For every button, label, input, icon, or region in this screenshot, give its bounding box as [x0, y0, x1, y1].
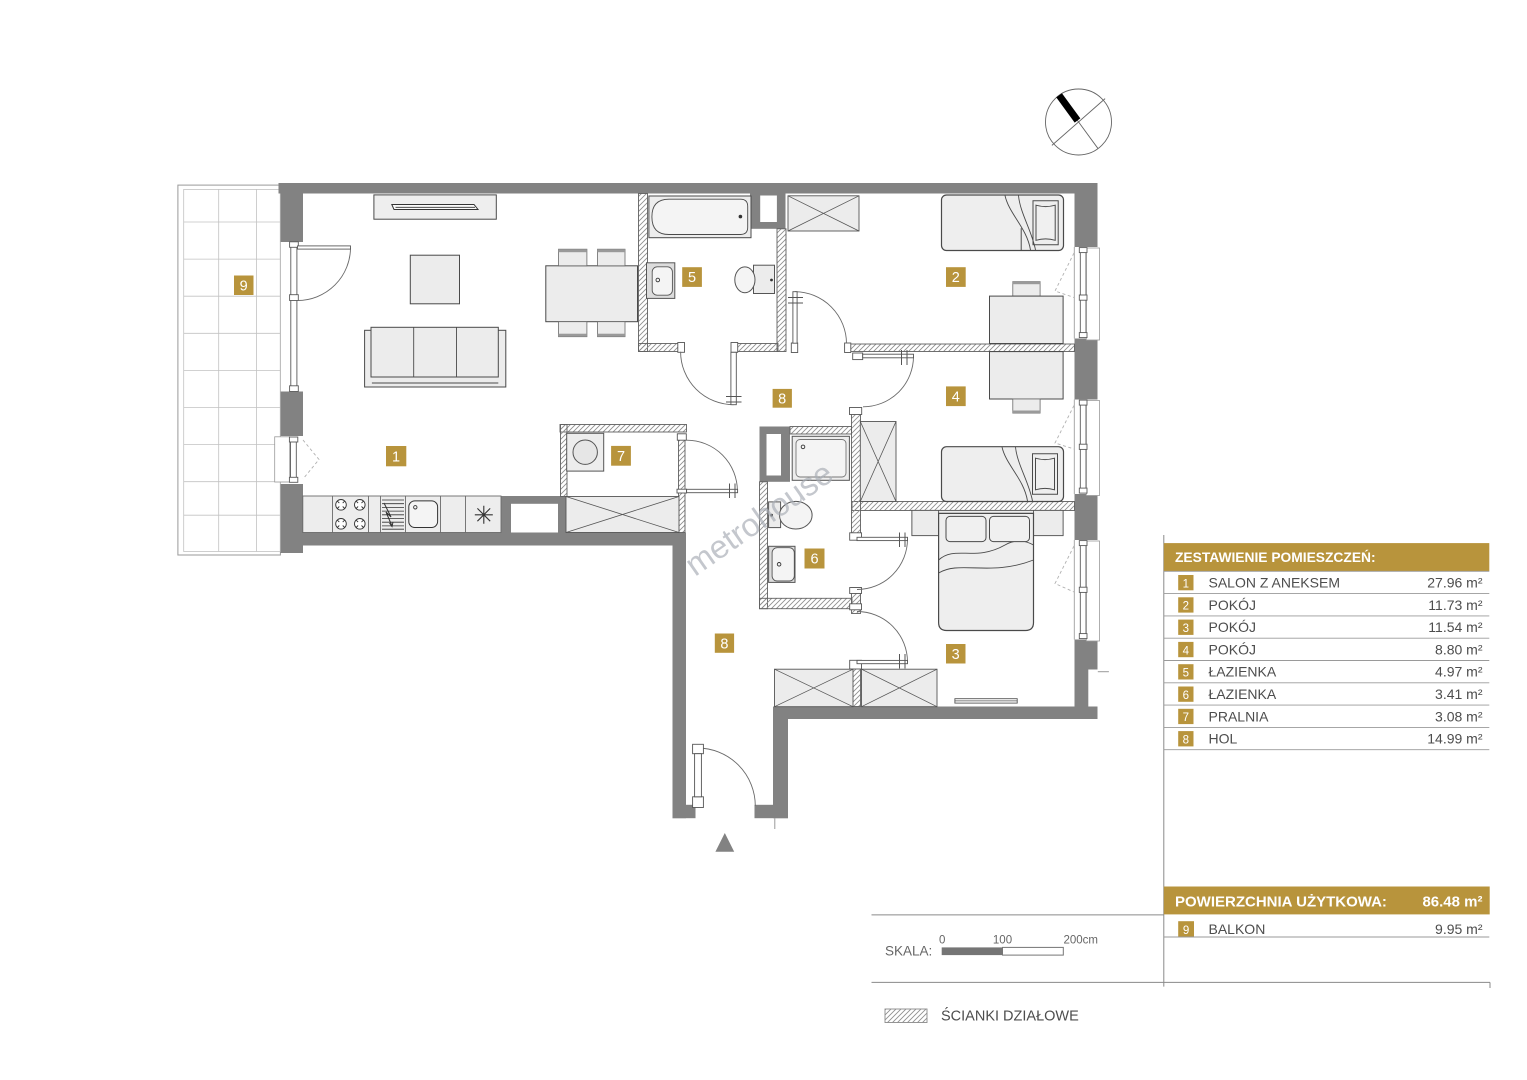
svg-text:2: 2 — [1183, 601, 1189, 613]
svg-text:3.41 m²: 3.41 m² — [1435, 686, 1483, 702]
svg-text:SKALA:: SKALA: — [885, 944, 932, 959]
svg-text:POKÓJ: POKÓJ — [1209, 597, 1256, 613]
svg-text:27.96 m²: 27.96 m² — [1427, 575, 1483, 591]
svg-text:7: 7 — [617, 449, 625, 465]
svg-text:PRALNIA: PRALNIA — [1209, 708, 1270, 724]
svg-text:ŁAZIENKA: ŁAZIENKA — [1209, 664, 1277, 680]
svg-text:200cm: 200cm — [1064, 935, 1099, 947]
svg-text:POKÓJ: POKÓJ — [1209, 641, 1256, 657]
svg-text:4: 4 — [952, 389, 960, 405]
svg-text:8: 8 — [1183, 735, 1189, 747]
svg-text:1: 1 — [392, 449, 400, 465]
svg-text:11.54 m²: 11.54 m² — [1428, 619, 1483, 635]
svg-text:9.95 m²: 9.95 m² — [1435, 921, 1483, 937]
svg-text:POWIERZCHNIA UŻYTKOWA:: POWIERZCHNIA UŻYTKOWA: — [1175, 894, 1387, 911]
svg-text:5: 5 — [1183, 668, 1189, 680]
svg-text:ZESTAWIENIE POMIESZCZEŃ:: ZESTAWIENIE POMIESZCZEŃ: — [1175, 549, 1376, 565]
svg-text:HOL: HOL — [1209, 731, 1238, 747]
svg-text:BALKON: BALKON — [1209, 921, 1266, 937]
svg-text:1: 1 — [1183, 578, 1189, 590]
svg-text:0: 0 — [939, 935, 945, 947]
svg-text:11.73 m²: 11.73 m² — [1428, 597, 1483, 613]
svg-text:SALON Z ANEKSEM: SALON Z ANEKSEM — [1209, 575, 1340, 591]
svg-text:ŁAZIENKA: ŁAZIENKA — [1209, 686, 1277, 702]
svg-text:9: 9 — [240, 278, 248, 294]
svg-text:3: 3 — [952, 647, 960, 663]
svg-text:3.08 m²: 3.08 m² — [1435, 708, 1483, 724]
svg-text:2: 2 — [952, 270, 960, 286]
svg-text:ŚCIANKI DZIAŁOWE: ŚCIANKI DZIAŁOWE — [941, 1007, 1079, 1025]
svg-text:5: 5 — [688, 270, 696, 286]
svg-text:POKÓJ: POKÓJ — [1209, 619, 1256, 635]
svg-text:8: 8 — [720, 636, 728, 652]
svg-text:6: 6 — [810, 552, 818, 568]
svg-text:3: 3 — [1183, 623, 1189, 635]
svg-text:6: 6 — [1183, 690, 1189, 702]
svg-text:14.99 m²: 14.99 m² — [1427, 731, 1483, 747]
svg-text:8: 8 — [778, 391, 786, 407]
svg-text:7: 7 — [1183, 712, 1189, 724]
svg-text:8.80 m²: 8.80 m² — [1435, 641, 1483, 657]
svg-text:4.97 m²: 4.97 m² — [1435, 664, 1483, 680]
svg-text:4: 4 — [1183, 645, 1190, 657]
svg-text:86.48 m²: 86.48 m² — [1422, 894, 1482, 911]
svg-text:9: 9 — [1183, 925, 1189, 937]
svg-text:100: 100 — [993, 935, 1012, 947]
